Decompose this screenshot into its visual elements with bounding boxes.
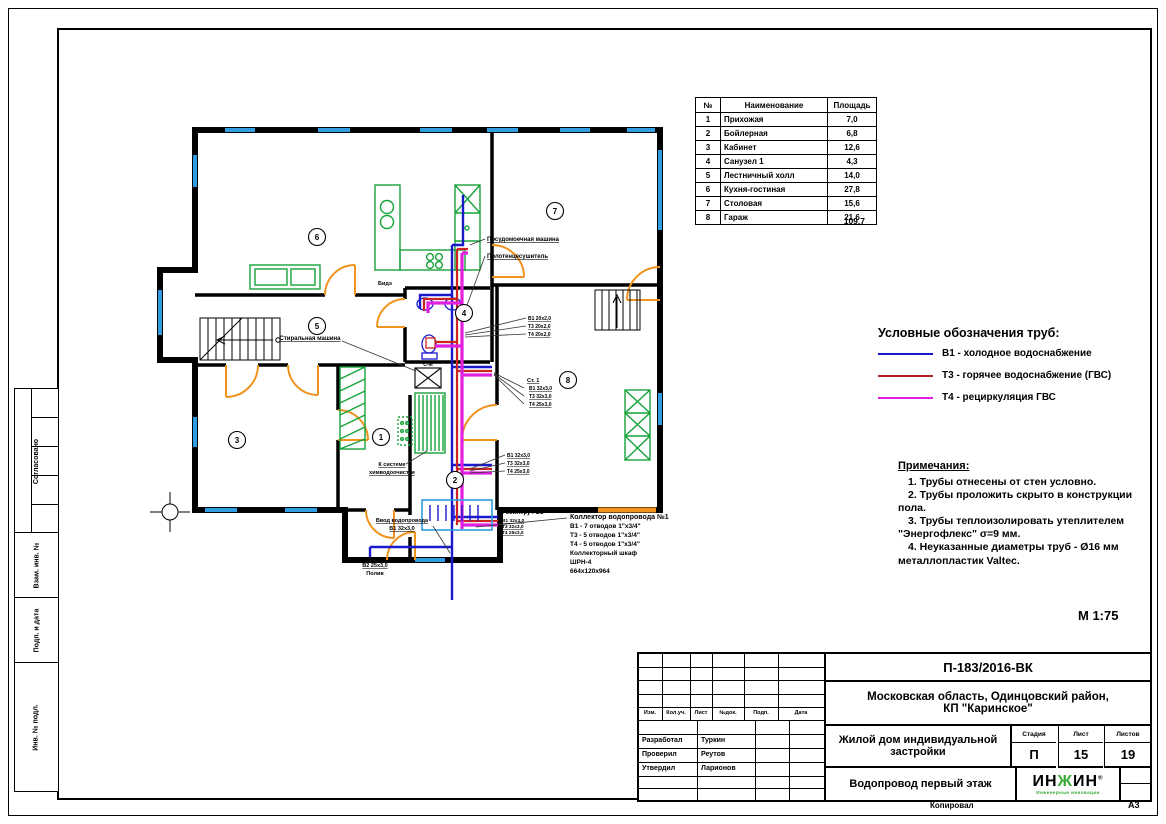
col-list: Лист: [695, 710, 708, 716]
dishwasher-label: Посудомоечная машина: [487, 237, 560, 243]
company-logo: ИНЖИН® Инженерные инновации: [1017, 768, 1121, 800]
project-location: Московская область, Одинцовский район, К…: [826, 682, 1150, 726]
scale-label: М 1:75: [1078, 608, 1118, 623]
room-number-badge: 2: [447, 472, 464, 489]
sheets-header: Листов: [1104, 726, 1151, 743]
table-row: 4Санузел 14,3: [696, 155, 877, 169]
stamp-label: Взам. инв. №: [33, 543, 40, 589]
svg-text:4: 4: [462, 309, 467, 318]
room-areas-table: № Наименование Площадь 1Прихожая7,0 2Бой…: [695, 97, 877, 225]
room-number-badge: 6: [309, 229, 326, 246]
note-line: 1. Трубы отнесены от стен условно.: [898, 476, 1143, 489]
svg-text:В1 32х3,0: В1 32х3,0: [507, 453, 530, 459]
legend-item-recirc: Т4 - рециркуляция ГВС: [878, 392, 1150, 403]
svg-text:В1 32х3,0: В1 32х3,0: [502, 518, 524, 524]
areas-total: 109,7: [695, 216, 871, 226]
paper-format-label: А3: [1128, 800, 1140, 810]
col-izm: Изм.: [644, 710, 656, 716]
floor-plan: 1 2 3 4 5 6 7 8 Посудомоечная машина Пол…: [130, 95, 700, 635]
stamp-inv-podl: Инв. № подл.: [14, 662, 59, 792]
room-number-badge: 1: [373, 429, 390, 446]
svg-text:Т3 - 5 отводов 1"х3/4": Т3 - 5 отводов 1"х3/4": [570, 532, 640, 539]
svg-text:В1 - 7 отводов 1"х3/4": В1 - 7 отводов 1"х3/4": [570, 523, 641, 530]
svg-text:В1 32х3,0: В1 32х3,0: [529, 386, 552, 392]
name-approved: Ларионов: [701, 765, 736, 772]
axis-marker-icon: [150, 492, 190, 532]
svg-text:Т3 32х3,0: Т3 32х3,0: [502, 524, 524, 530]
room-number-badge: 7: [547, 203, 564, 220]
svg-text:Т4 25х3,0: Т4 25х3,0: [529, 402, 552, 408]
stage-value: П: [1012, 743, 1056, 768]
col-data: Дата: [795, 710, 808, 716]
stamp-label: Подп. и дата: [33, 609, 40, 653]
table-row: 2Бойлерная6,8: [696, 127, 877, 141]
sheet-header: Лист: [1058, 726, 1103, 743]
pipe-legend: Условные обозначения труб: В1 - холодное…: [878, 326, 1150, 414]
sm-label: С-М: [423, 362, 432, 368]
boiler-label: К бойлеру ГВС: [500, 509, 545, 516]
svg-text:В1 20х2,0: В1 20х2,0: [528, 316, 551, 322]
irrigation-label-2: Полив: [366, 571, 384, 577]
cold-pipe-swatch: [878, 353, 933, 355]
room-number-badge: 8: [560, 372, 577, 389]
stage-header: Стадия: [1012, 726, 1056, 743]
washing-machine-label: Стиральная машина: [280, 336, 342, 342]
svg-text:Т4 - 5 отводов 1"х3/4": Т4 - 5 отводов 1"х3/4": [570, 541, 640, 548]
collector-label-1: Коллектор водопровода №1: [570, 513, 669, 521]
role-approved: Утвердил: [642, 765, 675, 772]
col-header-name: Наименование: [721, 98, 828, 113]
drawing-title: Водопровод первый этаж: [826, 768, 1017, 800]
drawing-sheet: Согласовано Взам. инв. № Подп. и дата Ин…: [0, 0, 1166, 824]
stamp-label: Согласовано: [33, 438, 40, 483]
sheet-number: 15: [1058, 743, 1103, 768]
name-developed: Туркин: [701, 737, 725, 744]
object-title: Жилой дом индивидуальной застройки: [826, 726, 1012, 768]
svg-text:7: 7: [553, 207, 558, 216]
svg-text:Т4 25х3,0: Т4 25х3,0: [507, 469, 530, 475]
inlet-label-2: В1 32х3,0: [389, 526, 414, 532]
room-number-badge: 4: [456, 305, 473, 322]
hot-pipe-swatch: [878, 375, 933, 377]
role-checked: Проверил: [642, 751, 677, 758]
logo-tagline: Инженерные инновации: [1036, 790, 1099, 795]
svg-text:Т3 20х2,0: Т3 20х2,0: [528, 324, 551, 330]
svg-text:Т4 20х2,0: Т4 20х2,0: [528, 332, 551, 338]
legend-title: Условные обозначения труб:: [878, 326, 1150, 340]
table-row: 5Лестничный холл14,0: [696, 169, 877, 183]
notes-block: Примечания: 1. Трубы отнесены от стен ус…: [898, 460, 1143, 568]
room-number-badge: 3: [229, 432, 246, 449]
table-row: 1Прихожая7,0: [696, 113, 877, 127]
svg-text:3: 3: [235, 436, 240, 445]
stamp-podp-data: Подп. и дата: [14, 597, 59, 664]
note-line: 3. Трубы теплоизолировать утеплителем "Э…: [898, 515, 1143, 541]
doc-number: П-183/2016-ВК: [826, 654, 1150, 682]
chem-label-2: химводоочистки: [369, 470, 415, 476]
col-podp: Подп.: [753, 710, 769, 716]
col-header-num: №: [696, 98, 721, 113]
riser-label: Ст. 1: [527, 378, 539, 384]
col-header-area: Площадь: [828, 98, 877, 113]
name-checked: Реутов: [701, 751, 725, 758]
recirc-pipe-swatch: [878, 397, 933, 399]
svg-text:Т3 32х3,0: Т3 32х3,0: [507, 461, 530, 467]
bide-label: Бидэ: [378, 281, 392, 287]
towel-dryer-label: Полотенцесушитель: [487, 254, 548, 260]
notes-title: Примечания:: [898, 460, 1143, 474]
stamp-vzam-inv: Взам. инв. №: [14, 532, 59, 599]
svg-text:664х120х964: 664х120х964: [570, 568, 610, 575]
stamp-soglasovano: Согласовано: [14, 388, 59, 534]
svg-text:Коллекторный шкаф: Коллекторный шкаф: [570, 549, 637, 557]
svg-text:8: 8: [566, 376, 571, 385]
table-row: 6Кухня-гостиная27,8: [696, 183, 877, 197]
role-developed: Разработал: [642, 737, 682, 744]
svg-text:5: 5: [315, 322, 320, 331]
logo-text: ИНЖИН®: [1032, 774, 1103, 790]
table-row: 7Столовая15,6: [696, 197, 877, 211]
note-line: 4. Неуказанные диаметры труб - Ø16 мм ме…: [898, 541, 1143, 567]
note-line: 2. Трубы проложить скрыто в конструкции …: [898, 489, 1143, 515]
legend-item-cold: В1 - холодное водоснабжение: [878, 348, 1150, 359]
svg-text:Т4 25х3,0: Т4 25х3,0: [502, 530, 524, 536]
col-dok: №док.: [719, 710, 736, 716]
svg-text:1: 1: [379, 433, 384, 442]
irrigation-label-1: В2 25х3,0: [362, 563, 387, 569]
stamp-label: Инв. № подл.: [33, 704, 40, 750]
title-block: Изм. Кол.уч. Лист №док. Подп. Дата Разра…: [637, 652, 1152, 802]
svg-text:2: 2: [453, 476, 458, 485]
copied-by-label: Копировал: [930, 801, 974, 810]
table-row: 3Кабинет12,6: [696, 141, 877, 155]
room-number-badge: 5: [309, 318, 326, 335]
col-koluch: Кол.уч.: [666, 710, 685, 716]
svg-text:6: 6: [315, 233, 320, 242]
sheets-total: 19: [1104, 743, 1151, 768]
inlet-label-1: Ввод водопровода: [376, 518, 429, 524]
legend-item-hot: Т3 - горячее водоснабжение (ГВС): [878, 370, 1150, 381]
chem-label-1: К системе: [378, 462, 405, 468]
logo-zh-glyph: Ж: [1058, 773, 1073, 790]
svg-text:Т3 32х3,0: Т3 32х3,0: [529, 394, 552, 400]
svg-text:ШРН-4: ШРН-4: [570, 559, 592, 566]
